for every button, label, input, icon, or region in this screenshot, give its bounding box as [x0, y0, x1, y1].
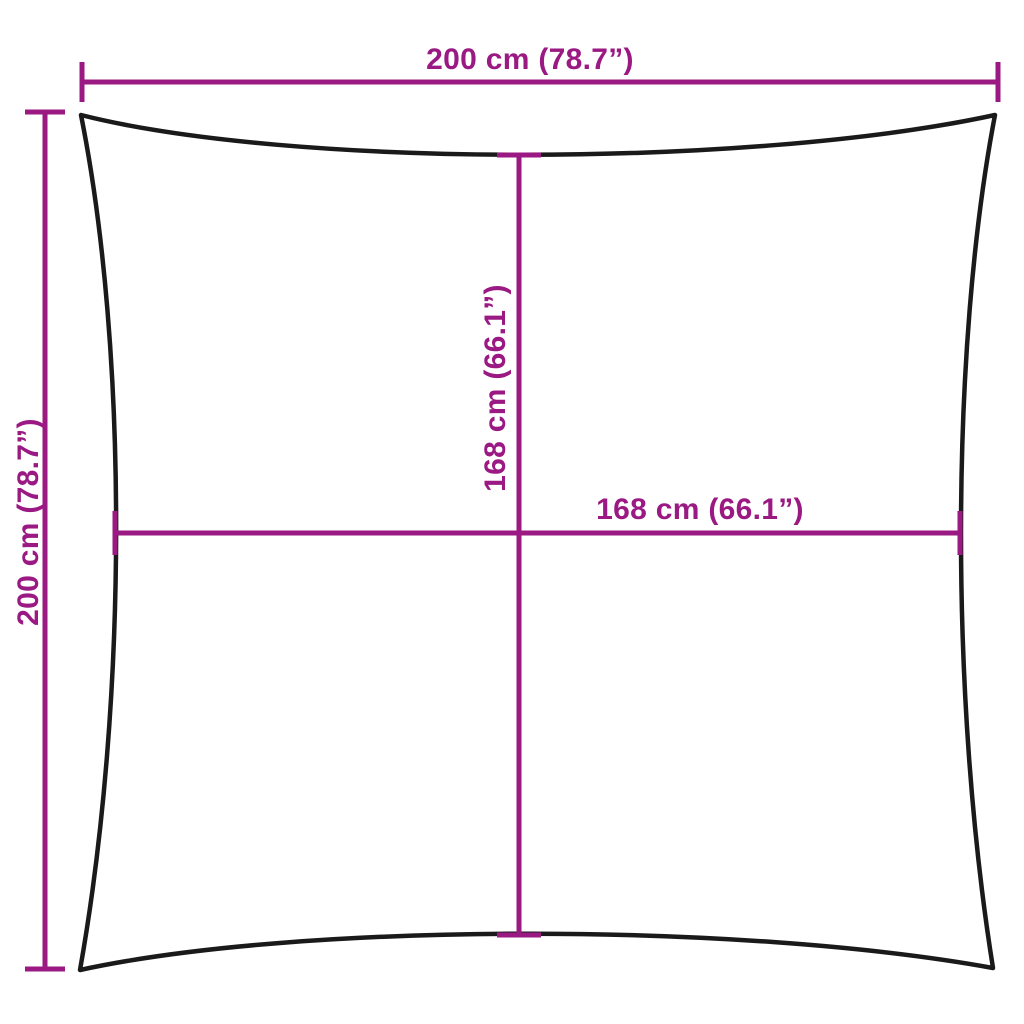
diagram-canvas — [0, 0, 1024, 1024]
dimension-line-inner-width — [115, 511, 960, 555]
dimension-diagram: 200 cm (78.7”) 200 cm (78.7”) 168 cm (66… — [0, 0, 1024, 1024]
dimension-label-inner-height: 168 cm (66.1”) — [481, 284, 511, 492]
dimension-label-inner-width: 168 cm (66.1”) — [596, 495, 804, 525]
shade-sail-outline — [80, 115, 995, 970]
dimension-label-left-height: 200 cm (78.7”) — [14, 418, 44, 626]
dimension-label-top-width: 200 cm (78.7”) — [426, 45, 634, 75]
dimension-line-inner-height — [497, 155, 541, 935]
